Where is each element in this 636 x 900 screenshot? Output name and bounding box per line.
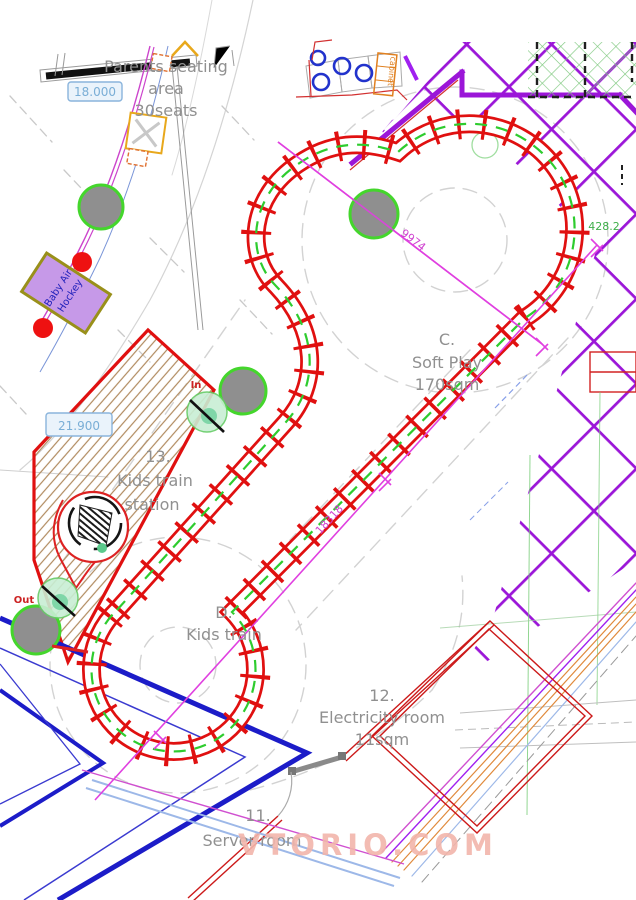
electricity-line3: 11sqm [355, 730, 409, 749]
floor-plan-drawing: 9974 18318 428.2 [0, 0, 636, 900]
floor-plan-canvas: 9974 18318 428.2 [0, 0, 636, 900]
top-left-structures: Baby Air Hockey [22, 42, 234, 372]
dim-18000-value: 18.000 [74, 85, 116, 99]
gate-out-label: Out [14, 595, 35, 606]
electricity-line1: 12. [369, 686, 394, 705]
dim-box-18000: 18.000 [68, 82, 122, 101]
cabinet-label: cabinet [386, 56, 398, 87]
tree [79, 185, 123, 229]
soft-play-line2: Soft Play [412, 353, 482, 372]
watermark: VTORIO.COM [238, 828, 498, 862]
crosshatch-area [528, 42, 636, 99]
soft-play-line1: C. [439, 330, 455, 349]
cabinet: cabinet [374, 53, 398, 96]
kids-train-line1: D. [215, 603, 232, 622]
dim-9974: 9974 [398, 227, 428, 254]
station-line1: 13. [145, 447, 170, 466]
dim-21900-value: 21.900 [58, 419, 100, 433]
toilet-cabinet-block: cabinet [296, 40, 407, 100]
dim-line-over-tree [278, 142, 542, 344]
soft-play-line3: 170sqm [415, 375, 480, 394]
kids-train-line2: Kids train [186, 625, 262, 644]
red-dot [33, 318, 53, 338]
electricity-line2: Electricity room [319, 708, 445, 727]
station-line2: Kids train [117, 471, 193, 490]
parents-seating-line2: area [148, 79, 184, 98]
gate-in-label: In [191, 380, 202, 391]
red-dot [72, 252, 92, 272]
server-line1: 11. [245, 806, 270, 825]
dim-428: 428.2 [588, 220, 620, 233]
parents-seating-line1: Parents seating [104, 57, 228, 76]
parents-seating-line3: 30seats [135, 101, 198, 120]
purple-stub [405, 56, 417, 80]
station-line3: station [124, 495, 179, 514]
tree [350, 190, 398, 238]
dim-box-21900: 21.900 [46, 413, 112, 436]
